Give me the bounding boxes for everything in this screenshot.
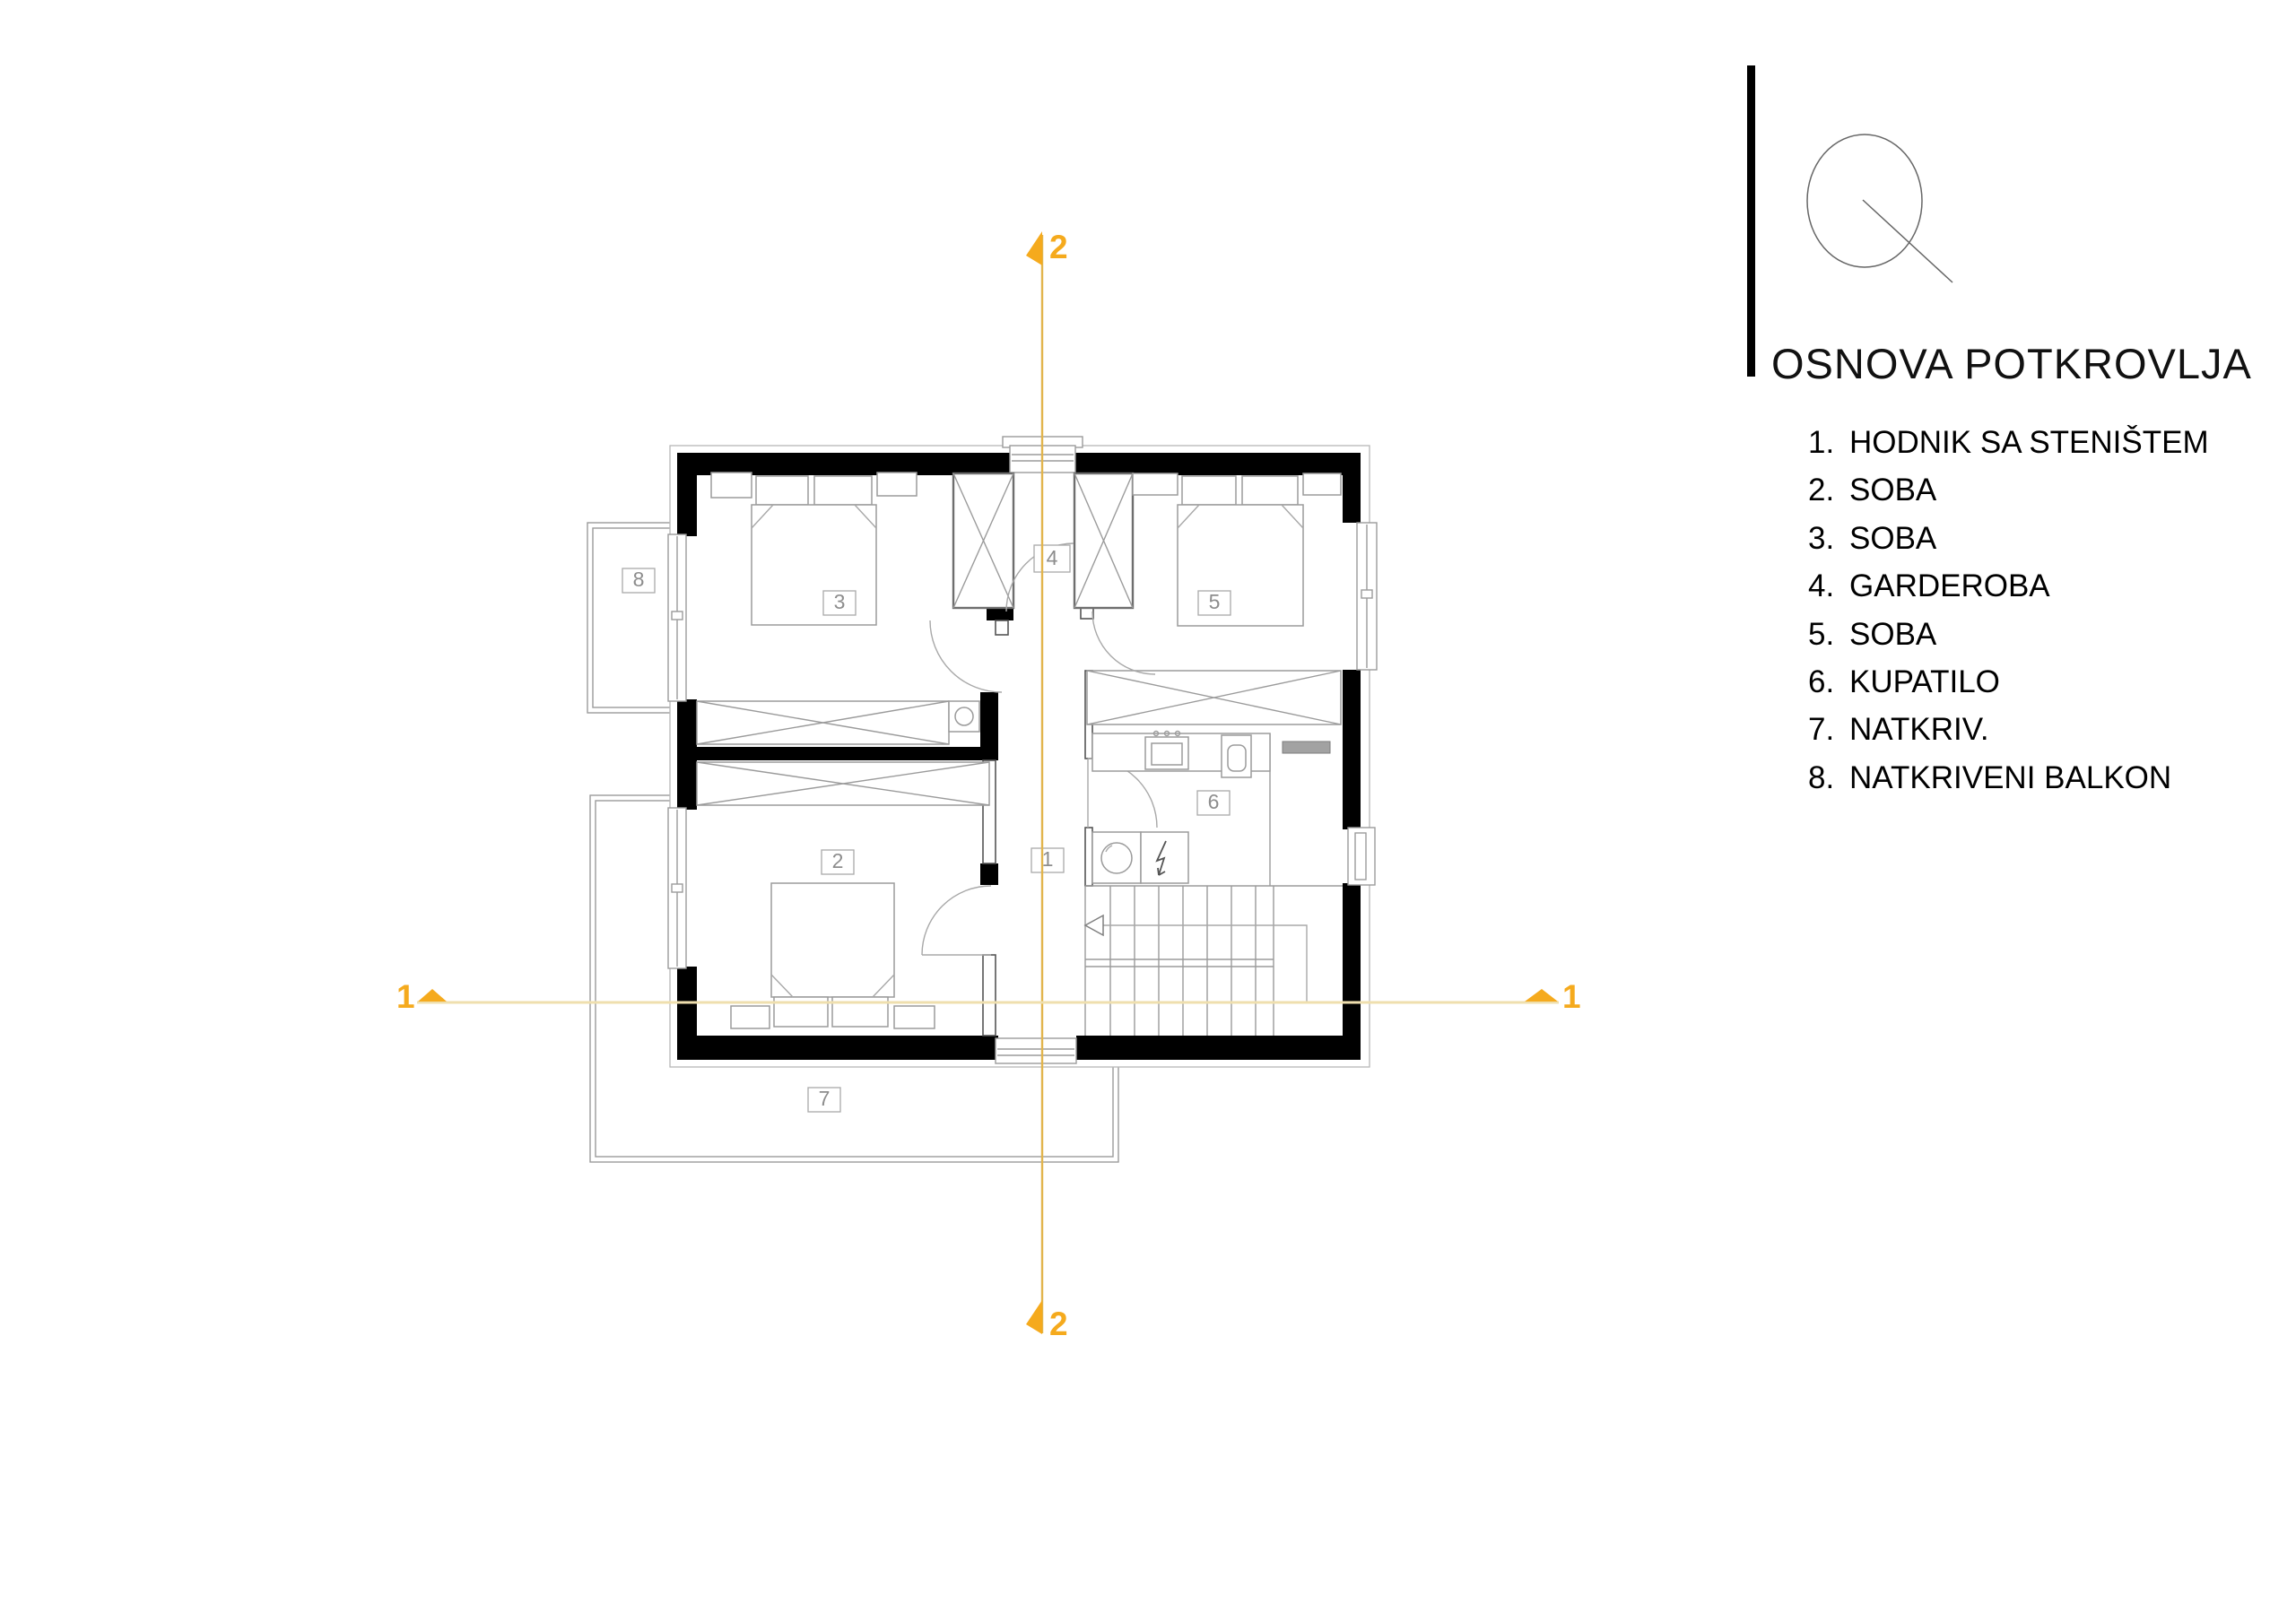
legend-label: NATKRIVENI BALKON (1849, 760, 2171, 796)
svg-text:8: 8 (633, 568, 645, 591)
svg-text:1: 1 (1042, 847, 1054, 871)
window-right-room5 (1357, 523, 1377, 670)
legend-num: 2. (1808, 473, 1849, 508)
closet-room2 (697, 762, 989, 805)
legend-item-3: 3. SOBA (1808, 521, 2209, 568)
legend-label: HODNIK SA STENIŠTEM (1849, 425, 2209, 461)
legend-num: 5. (1808, 617, 1849, 653)
legend-num: 3. (1808, 521, 1849, 557)
svg-text:3: 3 (834, 590, 846, 613)
section-label-2-top: 2 (1049, 229, 1068, 265)
window-left-room2 (668, 808, 686, 968)
legend-item-2: 2. SOBA (1808, 473, 2209, 520)
legend-label: KUPATILO (1849, 664, 2000, 700)
section-label-2-bottom: 2 (1049, 1305, 1068, 1342)
page-title: OSNOVA POTKROVLJA (1771, 339, 2252, 388)
vent-box (949, 701, 979, 732)
legend-label: GARDEROBA (1849, 568, 2050, 604)
legend-item-7: 7. NATKRIV. (1808, 712, 2209, 759)
washing-machine-icon (1092, 832, 1141, 883)
legend-label: SOBA (1849, 521, 1936, 557)
legend-num: 4. (1808, 568, 1849, 604)
section-flag-1-left-icon (418, 989, 447, 1002)
boiler-icon (1141, 832, 1188, 883)
balcony-8-outline (587, 523, 679, 713)
logo-bar (1747, 65, 1755, 377)
legend-item-6: 6. KUPATILO (1808, 664, 2209, 712)
window-right-stairs (1348, 828, 1375, 885)
section-flag-2-top-icon (1026, 231, 1042, 265)
room-label-6: 6 (1197, 790, 1230, 815)
section-label-1-left: 1 (396, 978, 415, 1015)
wardrobe-left (953, 473, 1013, 608)
room-label-7: 7 (808, 1087, 840, 1112)
legend-num: 1. (1808, 425, 1849, 461)
svg-text:2: 2 (832, 849, 844, 872)
svg-text:6: 6 (1208, 790, 1220, 813)
room-label-2: 2 (822, 849, 854, 874)
svg-text:4: 4 (1047, 546, 1058, 569)
logo-q-icon (1785, 117, 2018, 314)
room-label-5: 5 (1198, 590, 1231, 615)
toilet-icon (1222, 735, 1251, 777)
legend-label: NATKRIV. (1849, 712, 1989, 748)
room-label-4: 4 (1034, 545, 1070, 572)
room-label-1: 1 (1031, 847, 1064, 872)
legend-item-1: 1. HODNIK SA STENIŠTEM (1808, 425, 2209, 473)
closet-room3 (697, 701, 949, 744)
radiator-icon (1283, 742, 1330, 753)
legend-item-8: 8. NATKRIVENI BALKON (1808, 760, 2209, 808)
legend-num: 7. (1808, 712, 1849, 748)
sink-icon (1145, 732, 1188, 770)
legend-item-4: 4. GARDEROBA (1808, 568, 2209, 616)
closet-bathroom (1087, 671, 1341, 724)
section-flag-1-right-icon (1525, 989, 1558, 1002)
room-label-3: 3 (823, 590, 856, 615)
legend-label: SOBA (1849, 473, 1936, 508)
legend-num: 8. (1808, 760, 1849, 796)
page: 1 2 3 4 5 6 7 (0, 0, 2296, 1622)
svg-text:5: 5 (1209, 590, 1221, 613)
section-flag-2-bottom-icon (1026, 1300, 1042, 1334)
legend-num: 6. (1808, 664, 1849, 700)
legend-item-5: 5. SOBA (1808, 617, 2209, 664)
svg-text:7: 7 (819, 1087, 831, 1110)
room-label-8: 8 (622, 568, 655, 593)
section-label-1-right: 1 (1562, 978, 1581, 1015)
wardrobe-right (1074, 473, 1133, 608)
window-bottom (996, 1038, 1076, 1063)
window-left-room3 (668, 534, 686, 701)
legend-label: SOBA (1849, 617, 1936, 653)
legend: 1. HODNIK SA STENIŠTEM 2. SOBA 3. SOBA 4… (1808, 425, 2209, 808)
